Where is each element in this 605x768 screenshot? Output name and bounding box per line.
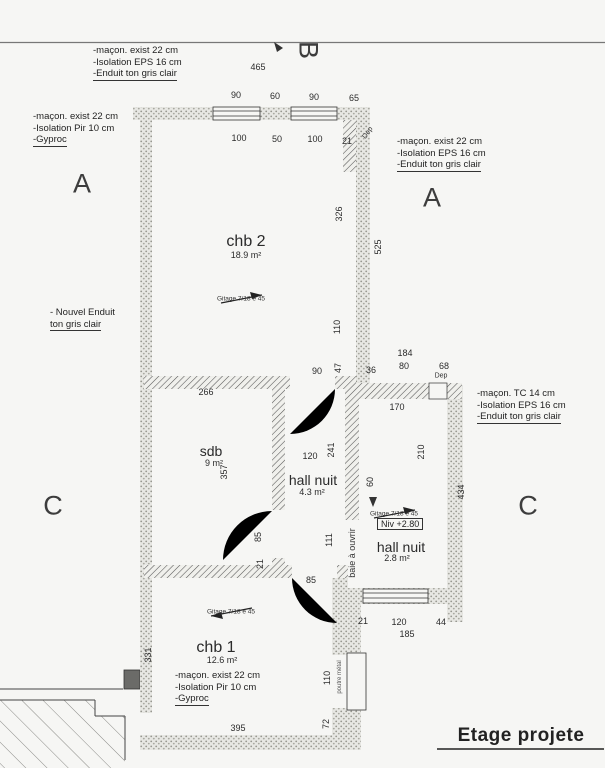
- dim-label: 465: [250, 62, 265, 72]
- annotation-line: -maçon. exist 22 cm: [33, 111, 118, 123]
- annotation-line: -Isolation EPS 16 cm: [93, 57, 182, 69]
- section-letter-c-left: C: [43, 491, 63, 522]
- dim-label: 85: [253, 532, 263, 542]
- dim-label: 21: [342, 136, 352, 146]
- dim-label: 434: [456, 484, 466, 499]
- section-letter-a-right: A: [423, 183, 441, 214]
- dim-label: 184: [397, 348, 412, 358]
- dim-label: 85: [306, 575, 316, 585]
- annotation-wall-right: -maçon. exist 22 cm -Isolation EPS 16 cm…: [397, 136, 486, 172]
- joist-note-chb2: Gitage 7/18 e 45: [217, 296, 265, 303]
- dim-label: 395: [230, 723, 245, 733]
- dim-label: 525: [373, 239, 383, 254]
- annotation-line: -maçon. exist 22 cm: [175, 670, 260, 682]
- joist-note-stair: Gitage 7/18 e 45: [370, 511, 418, 518]
- dim-label: 21: [358, 616, 368, 626]
- dim-label: 331: [143, 647, 153, 662]
- room-area-hall-nuit-2: 2.8 m²: [384, 553, 410, 563]
- dim-label: 68: [439, 361, 449, 371]
- dim-label: 44: [436, 617, 446, 627]
- toilet: [150, 539, 187, 567]
- annotation-line: -Isolation Pir 10 cm: [33, 123, 118, 135]
- dim-label: 65: [349, 93, 359, 103]
- dimension-lines: [130, 72, 473, 751]
- dim-label: 110: [322, 671, 332, 685]
- drawing-title: Etage projete: [458, 725, 585, 747]
- section-letter-c-right: C: [518, 491, 538, 522]
- room-label-hall-nuit-1: hall nuit: [289, 472, 337, 488]
- annotation-wall-top: -maçon. exist 22 cm -Isolation EPS 16 cm…: [93, 45, 182, 81]
- annotation-line: -maçon. TC 14 cm: [477, 388, 566, 400]
- annotation-line: -Enduit ton gris clair: [93, 68, 182, 81]
- annotation-nouvel-enduit: - Nouvel Enduit ton gris clair: [50, 307, 115, 331]
- dim-label: 100: [231, 133, 246, 143]
- dim-label: 110: [332, 320, 342, 334]
- annotation-wall-left: -maçon. exist 22 cm -Isolation Pir 10 cm…: [33, 111, 118, 147]
- dim-label: 50: [272, 134, 282, 144]
- dim-label: 60: [270, 91, 280, 101]
- room-area-chb2: 18.9 m²: [231, 250, 262, 260]
- level-badge: Niv +2.80: [377, 518, 423, 530]
- dim-label: 80: [399, 361, 409, 371]
- annotation-line: -Enduit ton gris clair: [397, 159, 486, 172]
- section-marker-a-right: [398, 217, 464, 239]
- annotation-line: -Isolation EPS 16 cm: [397, 148, 486, 160]
- dim-label: 326: [334, 206, 344, 221]
- dim-label: 100: [307, 134, 322, 144]
- annotation-line: ton gris clair: [50, 319, 115, 332]
- dim-label: 120: [302, 451, 317, 461]
- dim-label: 36: [366, 365, 376, 375]
- dim-label: 210: [416, 444, 426, 459]
- dim-label: 21: [255, 559, 265, 569]
- dim-label: 120: [391, 617, 406, 627]
- dim-label: 90: [231, 90, 241, 100]
- staircase: [359, 400, 447, 509]
- room-label-chb2: chb 2: [226, 233, 265, 251]
- section-marker-c-left: [20, 530, 88, 552]
- bathtub: [151, 444, 192, 533]
- room-area-hall-nuit-1: 4.3 m²: [299, 487, 325, 497]
- section-marker-c-right: [504, 528, 566, 550]
- section-letter-b: B: [293, 41, 324, 59]
- dim-label: 241: [326, 442, 336, 457]
- dim-label: 170: [389, 402, 404, 412]
- annotation-wall-chb1: -maçon. exist 22 cm -Isolation Pir 10 cm…: [175, 670, 260, 706]
- annotation-line: -Isolation Pir 10 cm: [175, 682, 260, 694]
- dim-label: 90: [312, 366, 322, 376]
- room-label-sdb: sdb: [200, 443, 223, 459]
- annotation-wall-tc: -maçon. TC 14 cm -Isolation EPS 16 cm -E…: [477, 388, 566, 424]
- floor-plan-page: chb 2 18.9 m² sdb 9 m² hall nuit 4.3 m² …: [0, 0, 605, 768]
- annotation-line: - Nouvel Enduit: [50, 307, 115, 319]
- walls-new: [144, 120, 462, 578]
- dim-label: 266: [198, 387, 213, 397]
- dim-label: 357: [219, 464, 229, 479]
- dim-label: 47: [333, 363, 343, 373]
- annotation-line: -Gyproc: [33, 134, 118, 147]
- dim-label: 90: [309, 92, 319, 102]
- shower: [152, 388, 194, 433]
- joist-note-chb1: Gitage 7/18 e 45: [207, 609, 255, 616]
- roof-hatch-area: [0, 670, 140, 768]
- baie-a-ouvrir-label: baie à ouvrir: [347, 528, 357, 578]
- dim-label: 111: [324, 533, 334, 547]
- dep-label: Dep: [435, 373, 448, 380]
- annotation-line: -Enduit ton gris clair: [477, 411, 566, 424]
- annotation-line: -Gyproc: [175, 693, 260, 706]
- annotation-line: -maçon. exist 22 cm: [397, 136, 486, 148]
- room-area-chb1: 12.6 m²: [207, 655, 238, 665]
- dim-label: 185: [399, 629, 414, 639]
- dim-label: 72: [321, 719, 331, 729]
- section-letter-a-left: A: [73, 169, 91, 200]
- annotation-line: -Isolation EPS 16 cm: [477, 400, 566, 412]
- poutre-metal-label: poutre métal: [337, 660, 343, 693]
- dim-label: 60: [365, 477, 375, 487]
- annotation-line: -maçon. exist 22 cm: [93, 45, 182, 57]
- section-marker-a-left: [44, 202, 112, 224]
